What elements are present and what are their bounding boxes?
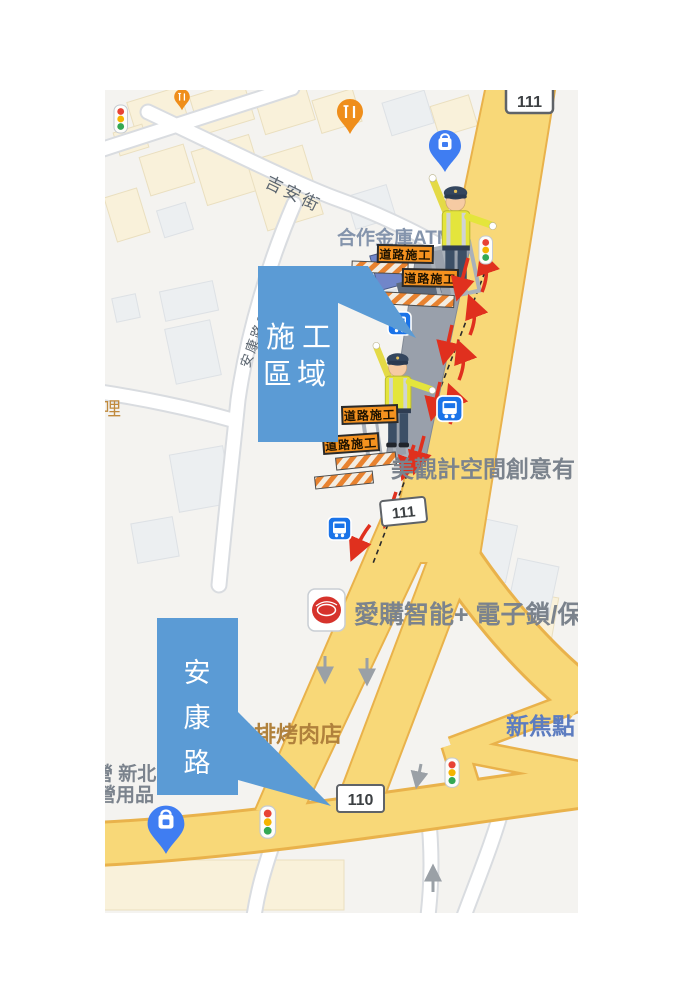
construction-sign: 道路施工 xyxy=(403,269,458,287)
construction-sign: 道路施工 xyxy=(378,245,433,263)
svg-text:道路施工: 道路施工 xyxy=(344,407,397,424)
svg-text:道路施工: 道路施工 xyxy=(379,247,431,263)
svg-text:道路施工: 道路施工 xyxy=(404,271,456,287)
poi-label-li: 哩 xyxy=(105,399,121,420)
route-shield-111-middle: 111 xyxy=(380,497,427,527)
poi-label-xinjiaodian: 新焦點 xyxy=(506,713,575,739)
store-logo-icon xyxy=(308,589,345,631)
svg-text:111: 111 xyxy=(391,503,416,522)
traffic-light-icon xyxy=(445,758,459,787)
traffic-light-icon xyxy=(114,105,128,133)
poi-label-meiguan: 美觀計空間創意有 xyxy=(391,456,575,482)
callout-ankang-char1: 安 xyxy=(184,658,211,689)
traffic-light-icon xyxy=(479,236,493,264)
traffic-light-icon xyxy=(260,806,276,838)
callout-ankang-char3: 路 xyxy=(184,748,211,779)
bus-stop-icon xyxy=(437,396,462,421)
construction-sign: 道路施工 xyxy=(342,405,398,424)
callout-ankang-char2: 康 xyxy=(184,703,211,734)
callout-construction-line1: 施工 xyxy=(266,320,338,354)
bus-stop-icon xyxy=(328,517,351,540)
svg-text:110: 110 xyxy=(348,792,374,809)
poi-label-store-line1: 營 新北 xyxy=(105,762,156,785)
annotated-map-figure: 吉安街 安康路616巷 哩 合作金庫ATM 道路施工 道路施工 道路施工 道路施… xyxy=(105,90,578,913)
callout-construction-line2: 區域 xyxy=(263,357,331,391)
route-shield-111-top: 111 xyxy=(506,90,553,113)
svg-text:111: 111 xyxy=(517,94,542,111)
poi-label-store-line2: 營用品 xyxy=(105,783,154,806)
poi-label-aigou: 愛購智能+ 電子鎖/保險 xyxy=(354,600,578,629)
route-shield-110: 110 xyxy=(337,785,384,812)
